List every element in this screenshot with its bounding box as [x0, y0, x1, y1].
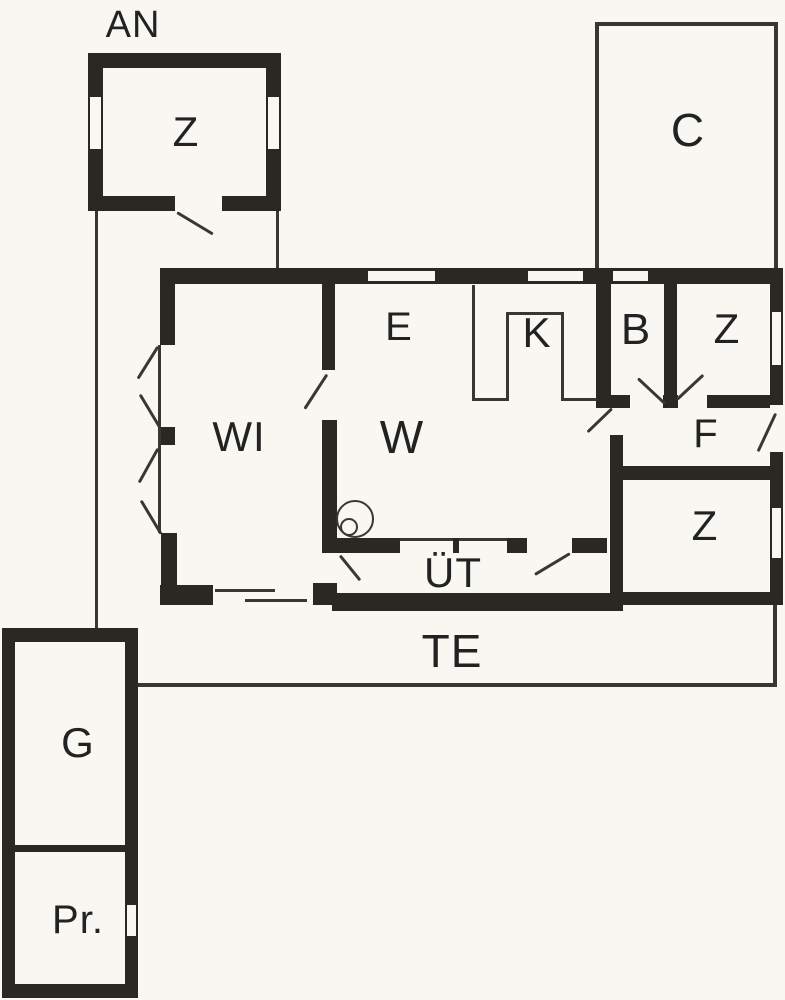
- room-label-dining: E: [385, 307, 413, 347]
- wall-segment: [160, 268, 783, 284]
- wall-segment: [664, 284, 677, 401]
- window: [772, 508, 781, 558]
- door-swing: [303, 374, 328, 410]
- wall-segment: [335, 538, 400, 553]
- room-label-carport: C: [671, 107, 705, 153]
- wall-segment: [2, 628, 138, 642]
- carport-outline: [595, 22, 778, 26]
- room-label-storage: Pr.: [52, 900, 104, 940]
- room-label-terrace: TE: [422, 628, 483, 674]
- kitchen-counter-line: [472, 285, 475, 400]
- wall-segment: [160, 427, 175, 445]
- sliding-door-line: [245, 599, 307, 602]
- wall-segment: [507, 538, 527, 553]
- wall-segment: [596, 268, 611, 405]
- wall-segment: [322, 420, 337, 553]
- wall-segment: [160, 585, 213, 605]
- wall-segment: [610, 435, 623, 611]
- wall-segment: [2, 984, 138, 998]
- room-label-garage: G: [61, 722, 95, 764]
- door-swing: [587, 407, 614, 433]
- window: [528, 271, 583, 281]
- door-swing: [339, 555, 361, 582]
- terrace-outline: [773, 605, 777, 687]
- wall-segment: [707, 395, 770, 408]
- room-label-bedroom-right: Z: [692, 505, 719, 547]
- room-label-bedroom-top: Z: [714, 308, 741, 350]
- door-opening: [127, 905, 136, 936]
- sliding-door-line: [215, 589, 275, 592]
- stove-inner-circle: [340, 518, 358, 536]
- walkway-line: [276, 211, 279, 268]
- door-swing: [138, 448, 160, 484]
- door-swing: [637, 377, 666, 404]
- door-swing: [137, 346, 160, 380]
- door-swing: [176, 211, 214, 235]
- room-label-winter-garden: WI: [212, 416, 265, 458]
- kitchen-counter-line: [561, 312, 564, 400]
- window: [268, 97, 279, 149]
- terrace-outline: [138, 683, 777, 687]
- window-frame-line: [459, 538, 507, 541]
- wall-segment: [322, 268, 335, 370]
- room-label-bath: B: [621, 308, 651, 352]
- wall-segment: [596, 395, 630, 408]
- wall-segment: [610, 592, 783, 605]
- window: [90, 97, 101, 149]
- kitchen-counter-line: [561, 398, 597, 401]
- room-label-covered-porch: ÜT: [424, 552, 482, 594]
- door-swing: [676, 374, 704, 401]
- room-label-hall: F: [693, 414, 718, 454]
- window: [613, 271, 648, 281]
- kitchen-counter-line: [472, 398, 509, 401]
- room-label-annex: AN: [106, 6, 161, 44]
- door-opening: [770, 405, 783, 452]
- window-frame-line: [400, 538, 453, 541]
- carport-outline: [595, 22, 599, 268]
- wall-segment: [15, 845, 125, 852]
- wall-segment: [620, 466, 770, 480]
- window: [368, 271, 435, 281]
- wall-segment: [2, 628, 15, 998]
- wall-segment: [88, 53, 281, 68]
- window: [772, 312, 781, 365]
- room-label-annex-room: Z: [173, 111, 200, 153]
- floor-plan: AN Z C E K B Z WI W F Z ÜT TE G Pr.: [0, 0, 785, 1000]
- door-opening: [175, 196, 222, 211]
- walkway-line: [95, 211, 98, 628]
- kitchen-counter-line: [506, 312, 509, 401]
- carport-outline: [774, 22, 778, 268]
- wall-segment: [125, 628, 138, 998]
- door-swing: [534, 552, 571, 576]
- closed-window-line: [158, 345, 161, 533]
- room-label-kitchen: K: [522, 312, 551, 354]
- wall-segment: [572, 538, 607, 553]
- wall-segment: [160, 268, 175, 345]
- room-label-living: W: [380, 414, 424, 460]
